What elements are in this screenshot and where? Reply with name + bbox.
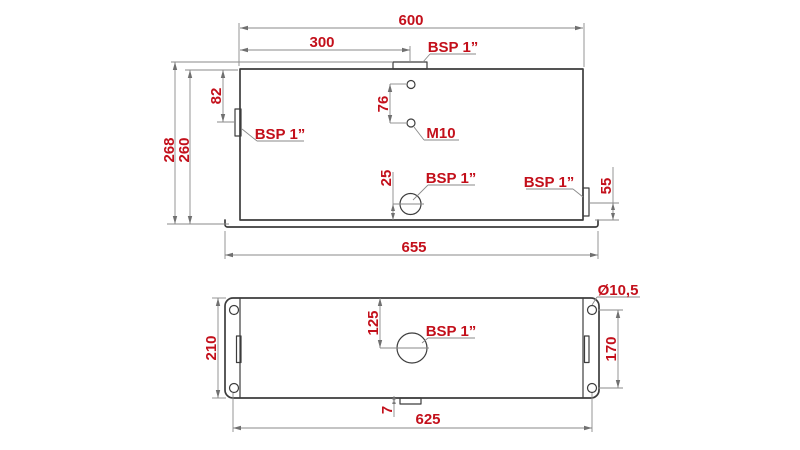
label-m10: M10 [414,125,459,142]
dim-port-offset: 125 [365,298,429,348]
mount-hole-bottom-left [230,384,239,393]
dim-655-label: 655 [401,239,426,256]
drawing-svg: 600 300 268 260 82 [0,0,800,450]
m10-label: M10 [426,125,455,142]
dim-depth: 210 [203,298,226,398]
dim-mount-hole-span: 625 [233,393,592,432]
dim-210-label: 210 [203,335,220,360]
dim-125-label: 125 [365,310,382,335]
dim-25-label: 25 [378,170,395,187]
return-port-boss [583,188,589,216]
label-filler-port: BSP 1” [423,39,478,62]
tank-bottom-outline [225,298,599,404]
label-suction-port: BSP 1” [422,323,476,343]
filler-port-label: BSP 1” [428,39,479,56]
mount-hole-bottom-right [588,384,597,393]
dim-total-height: 268 [161,62,392,224]
mount-hole-diameter-label: Ø10,5 [598,282,639,299]
dim-76-label: 76 [375,96,392,113]
filler-port-boss [393,62,427,69]
drain-port-label: BSP 1” [426,170,477,187]
m10-hole-bottom [407,119,415,127]
dim-base-width: 655 [225,231,598,259]
dim-side-port-offset: 82 [208,70,234,122]
m10-hole-top [407,81,415,89]
dim-600-label: 600 [398,12,423,29]
return-port-label: BSP 1” [524,174,575,191]
dim-260-label: 260 [176,137,193,162]
technical-drawing: 600 300 268 260 82 [0,0,800,450]
dim-filler-offset: 300 [240,34,410,61]
dim-top-width: 600 [239,12,584,67]
dim-body-height: 260 [176,70,238,224]
suction-port-label: BSP 1” [426,323,477,340]
right-flange-slot [585,336,590,363]
label-side-port: BSP 1” [242,126,305,143]
dim-tab-offset: 7 [379,396,396,417]
dim-625-label: 625 [415,411,440,428]
label-mount-hole-diameter: Ø10,5 [592,282,640,305]
dim-7-label: 7 [379,406,396,414]
side-port-label: BSP 1” [255,126,306,143]
mount-hole-top-right [588,306,597,315]
tank-front-outline [225,62,598,227]
bottom-tab [400,398,421,404]
dim-170-label: 170 [603,336,620,361]
dim-m10-spacing: 76 [375,84,406,123]
dim-82-label: 82 [208,88,225,105]
dim-mount-hole-spacing: 170 [598,310,623,388]
label-drain-port: BSP 1” [413,170,476,200]
dim-55-label: 55 [598,178,615,195]
bottom-view: 210 125 170 7 625 [203,282,640,432]
tank-body [240,69,583,220]
dim-300-label: 300 [309,34,334,51]
dim-return-height: 55 [590,167,619,220]
base-flange [225,220,598,227]
front-view: 600 300 268 260 82 [161,12,619,259]
label-return-port: BSP 1” [524,174,583,197]
mount-hole-top-left [230,306,239,315]
